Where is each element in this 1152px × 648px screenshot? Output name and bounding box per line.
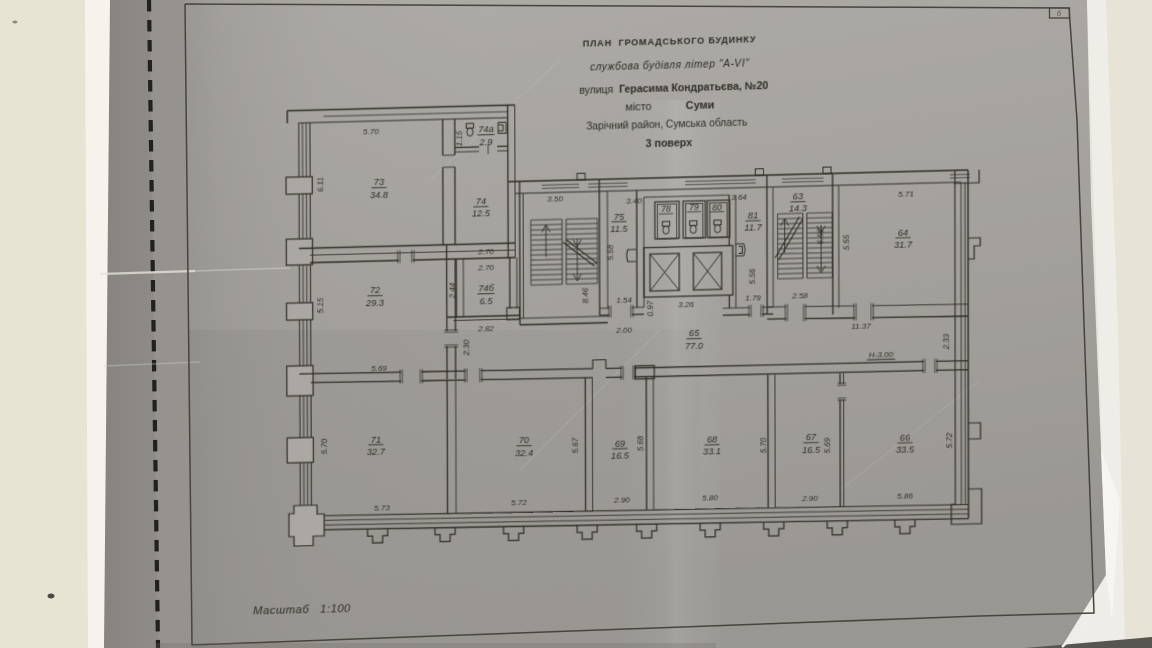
svg-text:службова будівля літер "А-VI": службова будівля літер "А-VI"	[590, 57, 750, 73]
svg-text:1.54: 1.54	[616, 295, 632, 304]
svg-text:5.70: 5.70	[320, 438, 329, 454]
svg-text:32.7: 32.7	[367, 447, 386, 457]
svg-text:5.69: 5.69	[823, 437, 832, 453]
svg-text:5.80: 5.80	[702, 493, 718, 502]
svg-text:3.64: 3.64	[731, 192, 747, 201]
svg-text:71: 71	[371, 434, 381, 444]
svg-text:5.15: 5.15	[316, 297, 325, 313]
svg-text:2.44: 2.44	[448, 282, 457, 299]
svg-text:Зарічний район, Сумська област: Зарічний район, Сумська область	[586, 117, 747, 133]
svg-text:81: 81	[748, 210, 758, 220]
svg-text:2.30: 2.30	[462, 339, 471, 356]
svg-text:33.1: 33.1	[703, 447, 721, 457]
svg-text:74: 74	[476, 196, 486, 206]
svg-text:2.58: 2.58	[791, 291, 808, 300]
svg-text:1.79: 1.79	[745, 293, 761, 302]
svg-text:63: 63	[793, 191, 804, 201]
svg-text:80: 80	[712, 202, 722, 212]
svg-text:2.90: 2.90	[613, 495, 630, 504]
svg-text:5.58: 5.58	[606, 244, 615, 260]
svg-text:5.68: 5.68	[636, 435, 645, 451]
svg-text:1.15: 1.15	[455, 130, 464, 146]
svg-text:0.97: 0.97	[646, 300, 655, 316]
svg-text:77.0: 77.0	[685, 341, 704, 351]
svg-text:5.56: 5.56	[816, 228, 825, 244]
svg-text:Н-3.00: Н-3.00	[869, 350, 894, 360]
svg-text:75: 75	[614, 211, 625, 221]
svg-text:2.9: 2.9	[479, 137, 493, 147]
svg-text:3.50: 3.50	[547, 194, 563, 203]
svg-text:5.71: 5.71	[898, 189, 914, 198]
svg-text:78: 78	[661, 204, 671, 214]
svg-text:місто: місто	[625, 102, 651, 115]
svg-text:5.56: 5.56	[748, 268, 757, 284]
svg-text:3.26: 3.26	[678, 300, 694, 309]
svg-text:5.55: 5.55	[842, 234, 851, 250]
svg-text:11.37: 11.37	[851, 321, 871, 330]
svg-text:2.70: 2.70	[477, 263, 494, 272]
svg-text:14.3: 14.3	[789, 204, 808, 214]
svg-text:2.00: 2.00	[615, 325, 632, 334]
svg-text:5.72: 5.72	[945, 432, 954, 448]
svg-text:6.5: 6.5	[480, 296, 494, 306]
svg-text:64: 64	[898, 227, 908, 237]
svg-text:2.90: 2.90	[801, 493, 818, 502]
svg-text:2.82: 2.82	[477, 324, 494, 333]
svg-text:29.3: 29.3	[365, 298, 385, 308]
svg-text:32.4: 32.4	[515, 448, 533, 458]
svg-text:79: 79	[689, 202, 699, 212]
svg-text:Суми: Суми	[686, 100, 715, 113]
svg-text:2.33: 2.33	[942, 333, 951, 350]
svg-text:5.86: 5.86	[897, 491, 913, 500]
svg-text:66: 66	[900, 432, 911, 442]
svg-text:8.46: 8.46	[581, 287, 590, 303]
svg-text:2.70: 2.70	[477, 247, 494, 256]
svg-text:3.40: 3.40	[626, 196, 642, 205]
svg-text:16.5: 16.5	[611, 451, 630, 461]
svg-text:68: 68	[707, 434, 718, 444]
svg-text:5.67: 5.67	[571, 437, 580, 453]
svg-text:31.7: 31.7	[894, 240, 913, 250]
svg-text:11.7: 11.7	[744, 223, 762, 233]
svg-text:5.70: 5.70	[759, 437, 768, 453]
svg-text:72: 72	[370, 285, 380, 295]
svg-text:34.8: 34.8	[370, 190, 389, 200]
svg-text:69: 69	[615, 438, 625, 448]
svg-text:5.69: 5.69	[371, 363, 387, 372]
svg-text:33.5: 33.5	[896, 445, 915, 455]
svg-text:74а: 74а	[478, 124, 494, 134]
svg-text:67: 67	[806, 432, 817, 442]
svg-text:16.5: 16.5	[802, 445, 821, 455]
svg-text:6.11: 6.11	[316, 177, 325, 192]
svg-text:ПЛАН ГРОМАДСЬКОГО БУДИНКУ: ПЛАН ГРОМАДСЬКОГО БУДИНКУ	[583, 34, 757, 48]
svg-text:5.70: 5.70	[363, 127, 379, 136]
svg-text:74б: 74б	[478, 283, 494, 293]
svg-text:вулиця Герасима Кондратьєва,: вулиця Герасима Кондратьєва, №20	[579, 81, 768, 97]
svg-text:11.5: 11.5	[610, 224, 628, 234]
svg-text:3 поверх: 3 поверх	[646, 137, 693, 150]
svg-text:5.72: 5.72	[511, 498, 527, 507]
svg-text:12.5: 12.5	[472, 209, 491, 219]
svg-text:5.73: 5.73	[374, 503, 390, 512]
svg-text:70: 70	[519, 435, 530, 445]
svg-text:Масштаб 1:100: Масштаб 1:100	[253, 603, 351, 617]
svg-text:73: 73	[374, 177, 385, 187]
svg-text:65: 65	[689, 328, 700, 338]
